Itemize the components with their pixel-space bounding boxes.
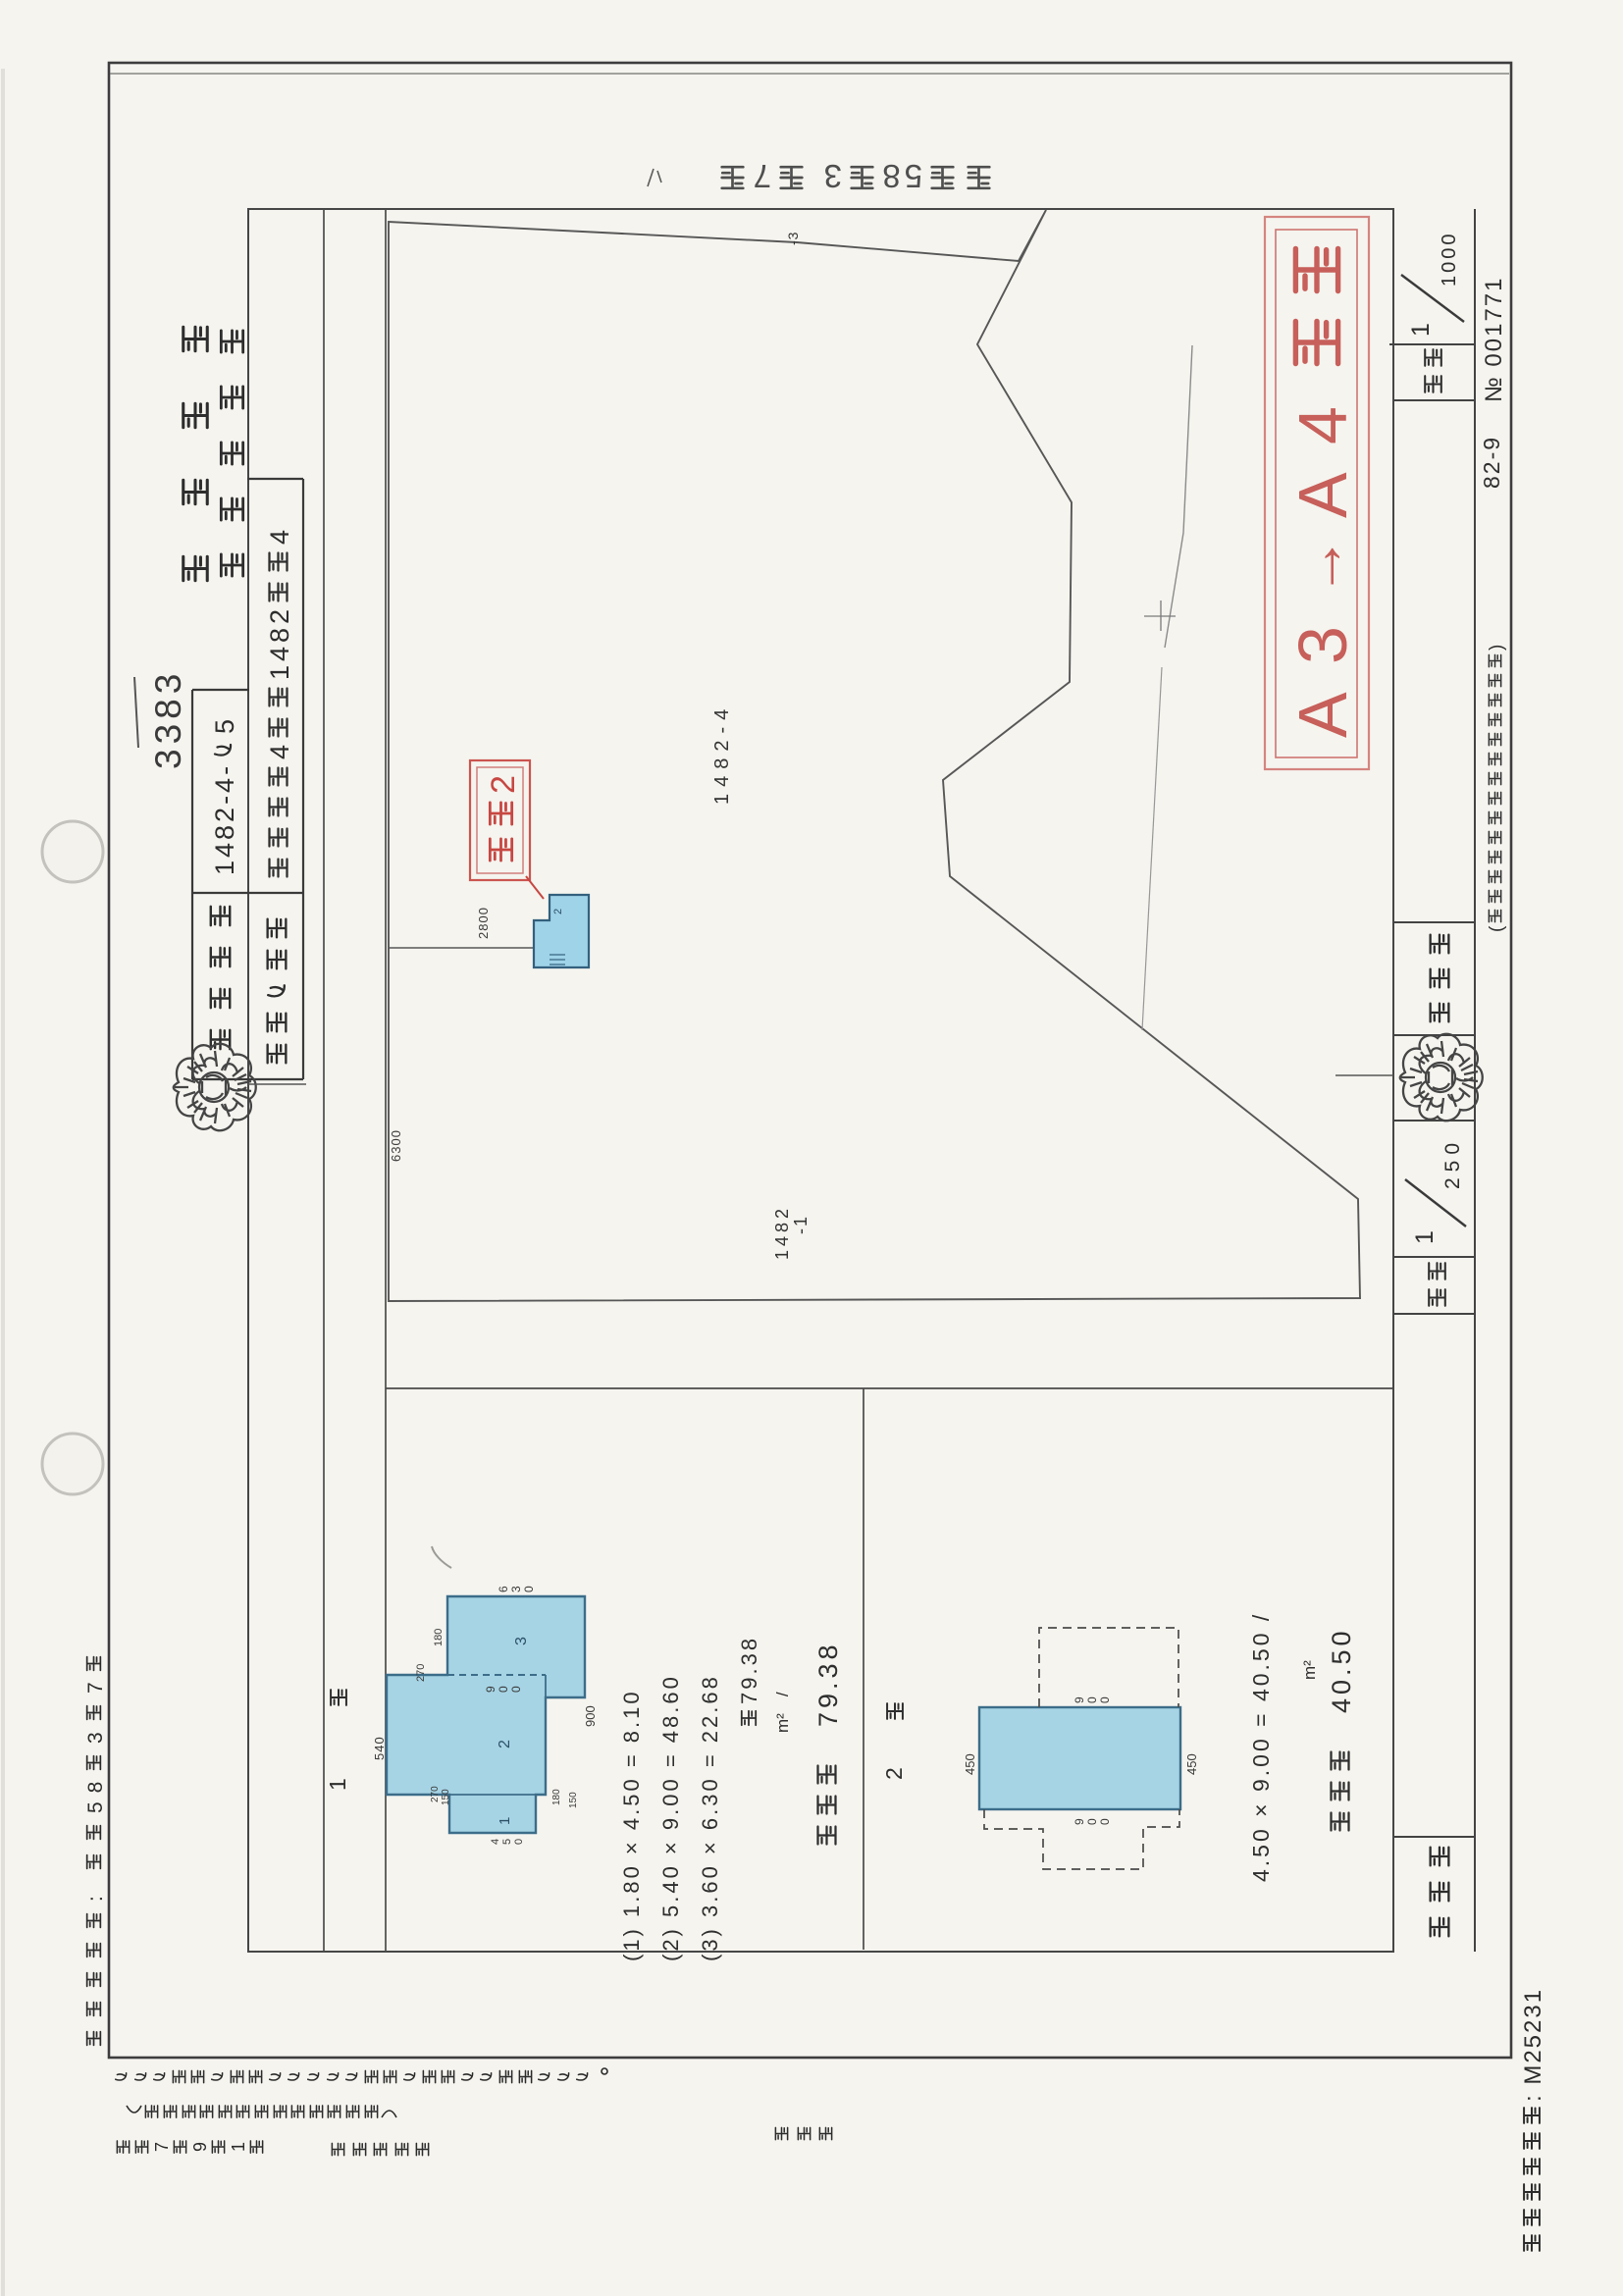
svg-text:1482: 1482 [265, 605, 294, 680]
svg-text:m² /: m² / [773, 1692, 792, 1733]
svg-text:900: 900 [484, 1686, 523, 1693]
svg-text:1: 1 [1407, 323, 1435, 337]
svg-text:A: A [1284, 472, 1361, 518]
svg-text:(: ( [1487, 925, 1507, 932]
svg-text:450: 450 [963, 1753, 977, 1775]
svg-text:1482: 1482 [772, 1205, 792, 1260]
svg-text:3: 3 [513, 1637, 530, 1645]
svg-text:2: 2 [552, 909, 564, 914]
svg-text:(3) 3.60 × 6.30 = 22.68: (3) 3.60 × 6.30 = 22.68 [698, 1674, 722, 1961]
svg-text:3383: 3383 [148, 669, 188, 769]
svg-text:): ) [1487, 644, 1507, 651]
svg-text:1: 1 [1411, 1230, 1439, 1244]
svg-text:58: 58 [84, 1773, 107, 1813]
svg-text:250: 250 [1441, 1137, 1464, 1189]
svg-text:2: 2 [497, 1740, 513, 1748]
svg-text:4.50 × 9.00 = 40.50 /: 4.50 × 9.00 = 40.50 / [1248, 1612, 1274, 1882]
svg-text:79.38: 79.38 [813, 1641, 843, 1727]
svg-text:6300: 6300 [389, 1129, 403, 1162]
svg-text:9: 9 [190, 2142, 210, 2152]
svg-text:180: 180 [433, 1629, 445, 1646]
svg-text:58: 58 [878, 158, 922, 194]
svg-text:180: 180 [551, 1789, 562, 1805]
svg-text:4: 4 [265, 526, 294, 545]
svg-text:7: 7 [84, 1673, 107, 1694]
svg-text:450: 450 [490, 1839, 525, 1845]
svg-text:900: 900 [1073, 1818, 1112, 1825]
svg-text:2800: 2800 [476, 907, 491, 939]
svg-text:: M25231: : M25231 [1520, 1988, 1546, 2102]
svg-text:1: 1 [229, 2142, 248, 2152]
svg-text:4: 4 [265, 741, 294, 759]
svg-text:630: 630 [497, 1586, 536, 1592]
svg-text:900: 900 [583, 1705, 598, 1727]
svg-text:450: 450 [1184, 1753, 1199, 1775]
svg-text::: : [84, 1887, 107, 1902]
svg-text:150: 150 [441, 1789, 451, 1805]
svg-text:270: 270 [415, 1664, 427, 1682]
svg-text:4: 4 [1284, 406, 1361, 444]
svg-text:(1) 1.80 × 4.50 = 8.10: (1) 1.80 × 4.50 = 8.10 [619, 1689, 644, 1961]
svg-text:1: 1 [497, 1817, 513, 1825]
svg-text:5: 5 [210, 716, 239, 734]
svg-text:m²: m² [1300, 1660, 1319, 1680]
svg-text:79.38: 79.38 [737, 1636, 761, 1704]
svg-text:2: 2 [881, 1767, 907, 1780]
svg-text:40.50: 40.50 [1327, 1627, 1356, 1713]
svg-text:270: 270 [430, 1786, 441, 1802]
svg-text:№ 001771: № 001771 [1481, 277, 1507, 403]
svg-text:-3: -3 [785, 232, 801, 245]
svg-text:150: 150 [568, 1792, 579, 1808]
svg-text:3: 3 [820, 158, 842, 194]
svg-text:-1: -1 [791, 1215, 811, 1234]
svg-text:(2) 5.40 × 9.00 = 48.60: (2) 5.40 × 9.00 = 48.60 [658, 1674, 683, 1961]
svg-text:7: 7 [750, 158, 771, 194]
svg-text:A: A [1284, 692, 1361, 738]
svg-text:3: 3 [1284, 626, 1361, 664]
svg-text:1482-4: 1482-4 [711, 703, 733, 805]
svg-text:1: 1 [325, 1778, 350, 1791]
svg-text:82-9: 82-9 [1479, 436, 1504, 489]
svg-text:3: 3 [84, 1723, 107, 1744]
svg-text:2: 2 [485, 772, 522, 794]
svg-text:→: → [1288, 536, 1356, 597]
svg-text:1482-4-: 1482-4- [210, 763, 239, 875]
svg-text:540: 540 [372, 1736, 387, 1760]
svg-text:1000: 1000 [1439, 232, 1460, 287]
svg-text:7: 7 [152, 2142, 172, 2152]
svg-text:900: 900 [1073, 1696, 1112, 1703]
